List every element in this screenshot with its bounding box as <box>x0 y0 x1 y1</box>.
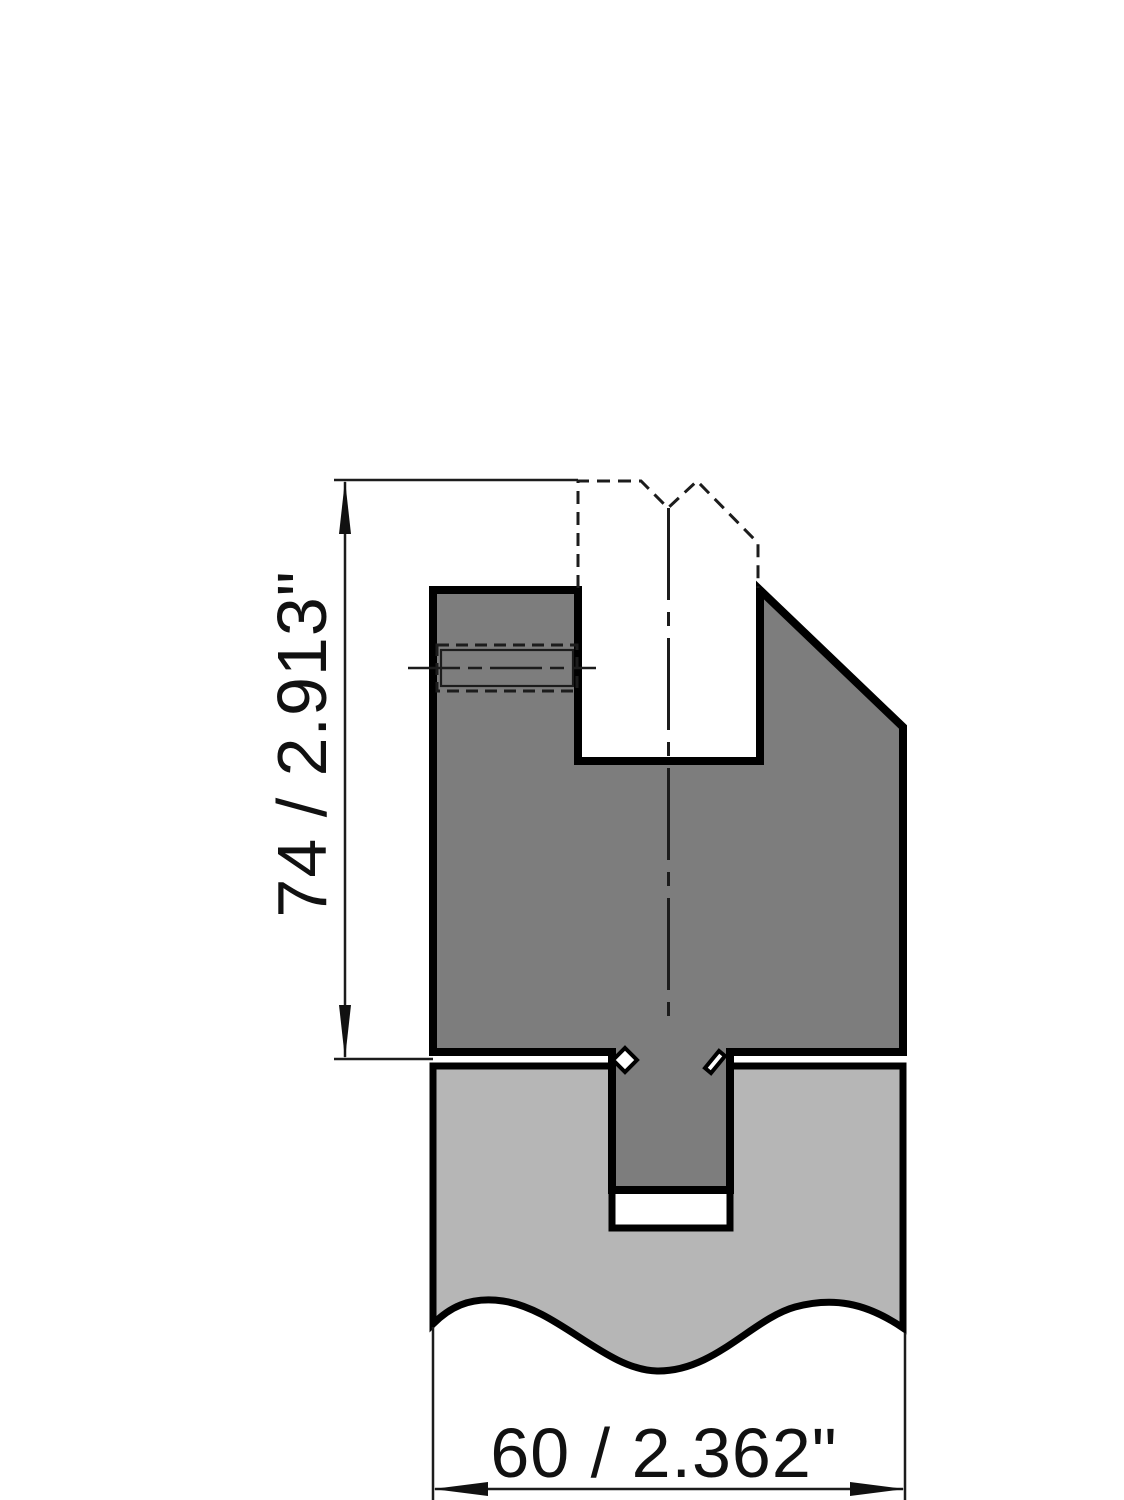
width-arrow-left <box>433 1482 488 1496</box>
height-arrow-up <box>339 480 351 534</box>
drawing-canvas: 74 / 2.913" 60 / 2.362" <box>0 0 1124 1500</box>
width-arrow-right <box>850 1482 905 1496</box>
height-arrow-down <box>339 1005 351 1059</box>
technical-drawing: 74 / 2.913" 60 / 2.362" <box>0 0 1124 1500</box>
height-dim-label: 74 / 2.913" <box>263 570 341 917</box>
width-dim-label: 60 / 2.362" <box>490 1414 837 1492</box>
